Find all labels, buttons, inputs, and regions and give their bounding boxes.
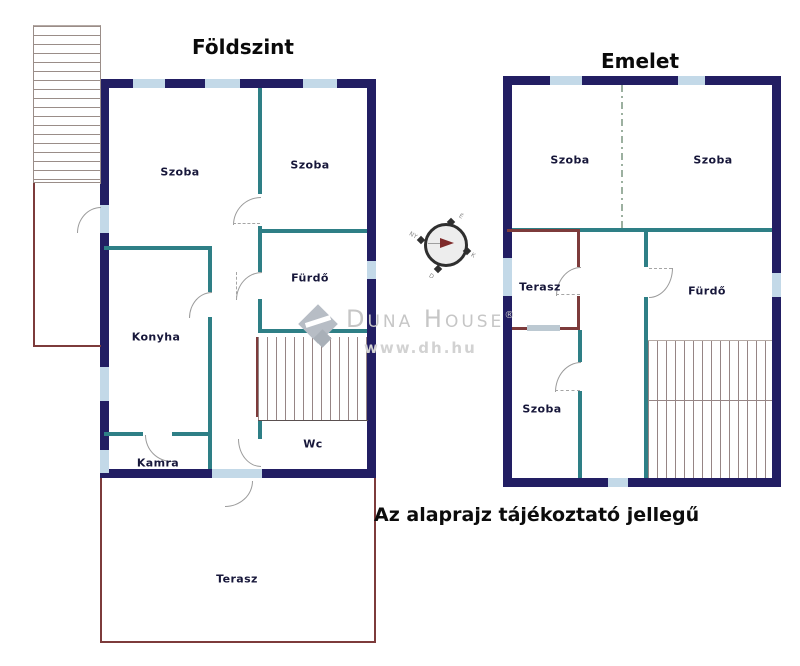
room-label-furdo: Fürdő bbox=[688, 285, 726, 298]
interior-wall bbox=[208, 246, 212, 292]
compass-label-south: D bbox=[428, 272, 436, 280]
room-label-szoba: Szoba bbox=[693, 154, 732, 167]
interior-wall bbox=[258, 299, 262, 332]
terrace-wall bbox=[577, 229, 580, 267]
disclaimer-text: Az alaprajz tájékoztató jellegű bbox=[374, 504, 699, 526]
window bbox=[550, 76, 582, 85]
door-arc bbox=[236, 272, 262, 300]
room-label-szoba: Szoba bbox=[550, 154, 589, 167]
interior-wall bbox=[578, 330, 582, 362]
door-swing-line bbox=[555, 390, 580, 391]
wall bbox=[503, 76, 781, 85]
room-label-terasz: Terasz bbox=[519, 281, 561, 294]
door-opening bbox=[608, 478, 628, 487]
window bbox=[100, 367, 109, 401]
staircase-hatch bbox=[648, 340, 772, 478]
window bbox=[133, 79, 165, 88]
door-swing-line bbox=[236, 272, 237, 299]
wall bbox=[100, 79, 109, 478]
terrace-wall bbox=[256, 337, 258, 417]
window bbox=[503, 258, 512, 296]
door-swing-line bbox=[649, 268, 672, 269]
ground-floor-title: Földszint bbox=[192, 35, 294, 59]
room-label-konyha: Konyha bbox=[132, 331, 181, 344]
door-arc bbox=[233, 197, 261, 225]
interior-wall bbox=[104, 246, 210, 250]
interior-wall bbox=[104, 432, 143, 436]
wall bbox=[503, 478, 781, 487]
door-swing-line bbox=[233, 223, 260, 224]
room-label-furdo: Fürdő bbox=[291, 272, 329, 285]
compass-label-north: É bbox=[458, 213, 465, 221]
watermark-brand: Duna House® bbox=[346, 305, 517, 333]
window bbox=[772, 273, 781, 297]
terrace-wall bbox=[507, 229, 580, 232]
terrace-wall bbox=[100, 641, 376, 643]
interior-wall bbox=[258, 229, 262, 272]
interior-wall bbox=[208, 317, 212, 469]
interior-wall bbox=[172, 432, 210, 436]
window bbox=[367, 261, 376, 279]
door-arc bbox=[555, 362, 581, 392]
interior-wall bbox=[258, 88, 262, 194]
interior-wall bbox=[262, 229, 367, 233]
interior-wall bbox=[578, 391, 582, 478]
room-label-wc: Wc bbox=[303, 438, 322, 451]
compass-north-needle-icon bbox=[440, 238, 454, 248]
door-arc bbox=[77, 207, 101, 233]
floor-plan-image: Földszint Szoba Szoba Fürdő Ko bbox=[0, 0, 800, 666]
interior-wall bbox=[258, 421, 262, 439]
registered-mark: ® bbox=[504, 310, 517, 321]
door-arc bbox=[238, 439, 261, 467]
watermark: Duna House® www.dh.hu bbox=[296, 302, 516, 360]
room-label-szoba: Szoba bbox=[290, 159, 329, 172]
window bbox=[678, 76, 705, 85]
interior-wall bbox=[644, 232, 648, 267]
watermark-url: www.dh.hu bbox=[364, 339, 477, 357]
terrace-wall bbox=[100, 478, 102, 643]
terrace-wall bbox=[577, 296, 580, 330]
door-opening bbox=[100, 205, 109, 233]
compass-label-east: K bbox=[470, 251, 477, 259]
exterior-stairs bbox=[33, 25, 101, 184]
terrace-wall bbox=[33, 183, 35, 347]
staircase-hatch-line bbox=[648, 400, 772, 401]
terrace-wall bbox=[374, 478, 376, 643]
upper-floor-title: Emelet bbox=[601, 49, 679, 73]
door-swing-line bbox=[556, 294, 580, 295]
room-label-kamra: Kamra bbox=[137, 457, 179, 470]
window bbox=[527, 325, 560, 331]
terrace-wall bbox=[33, 182, 100, 183]
divider-dashed bbox=[621, 85, 623, 228]
room-label-szoba: Szoba bbox=[160, 166, 199, 179]
room-label-szoba: Szoba bbox=[522, 403, 561, 416]
compass: É K D NY bbox=[415, 216, 473, 274]
door-arc bbox=[225, 481, 253, 507]
door-opening bbox=[212, 469, 262, 478]
window bbox=[303, 79, 337, 88]
window bbox=[100, 450, 109, 473]
door-arc bbox=[189, 292, 212, 318]
window bbox=[205, 79, 240, 88]
watermark-brand-text: Duna House bbox=[346, 305, 504, 333]
room-label-terasz: Terasz bbox=[216, 573, 258, 586]
terrace-wall bbox=[33, 345, 101, 347]
door-arc bbox=[649, 268, 673, 298]
